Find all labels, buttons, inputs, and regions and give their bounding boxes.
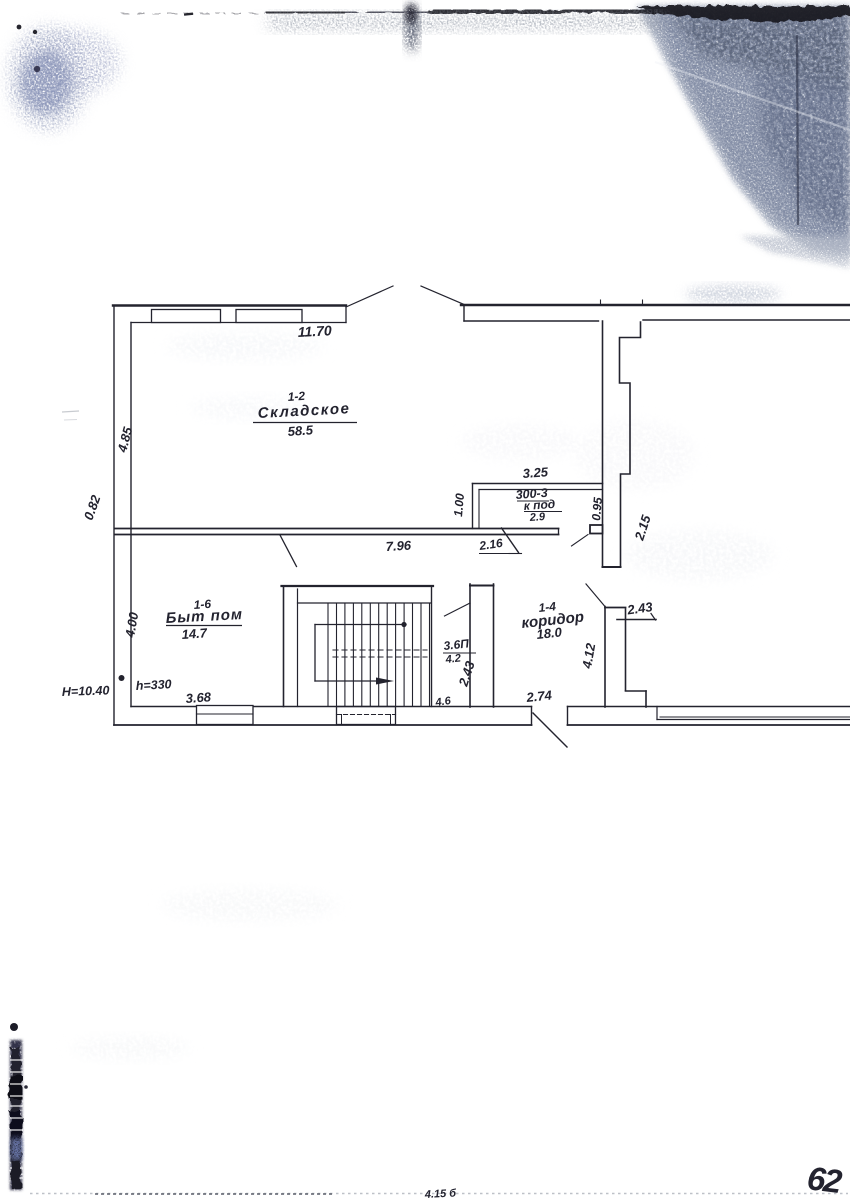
svg-text:0.95: 0.95 [589, 496, 605, 521]
svg-text:2.9: 2.9 [528, 511, 546, 524]
svg-text:3.68: 3.68 [185, 689, 212, 706]
svg-text:3.25: 3.25 [522, 464, 549, 481]
svg-text:3.6П: 3.6П [443, 636, 470, 653]
svg-text:4.6: 4.6 [434, 695, 453, 709]
svg-text:18.0: 18.0 [536, 624, 563, 642]
svg-text:7.96: 7.96 [385, 538, 412, 554]
svg-text:4.15 б: 4.15 б [424, 1187, 458, 1200]
svg-text:4.2: 4.2 [444, 652, 461, 666]
svg-text:h=330: h=330 [135, 677, 172, 693]
svg-text:H=10.40: H=10.40 [62, 683, 110, 699]
svg-text:2.74: 2.74 [525, 687, 553, 705]
svg-text:14.7: 14.7 [181, 625, 208, 642]
svg-text:1.00: 1.00 [451, 492, 467, 517]
svg-text:11.70: 11.70 [297, 322, 332, 340]
svg-text:58.5: 58.5 [287, 422, 314, 439]
